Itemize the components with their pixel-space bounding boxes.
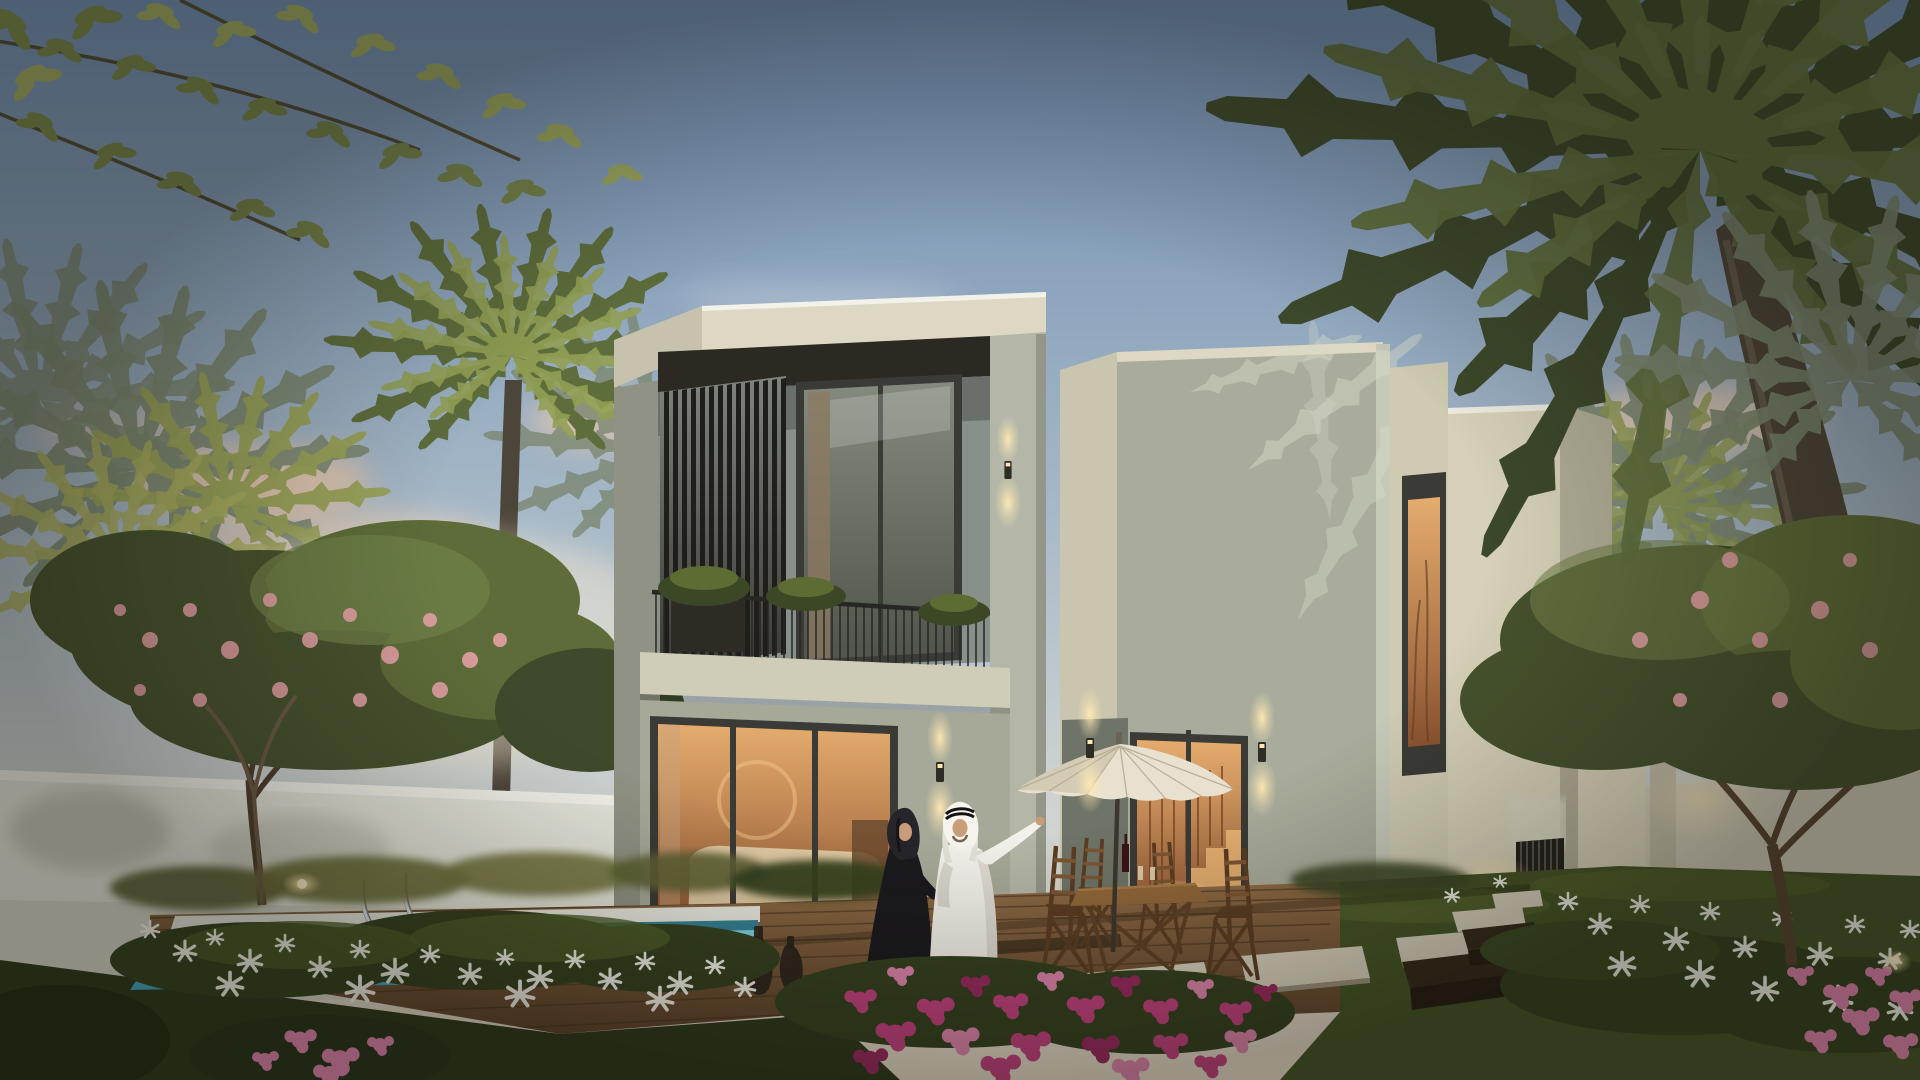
- villa-rendering: [0, 0, 1920, 1080]
- vignette-overlay: [0, 0, 1920, 1080]
- scene-canvas: [0, 0, 1920, 1080]
